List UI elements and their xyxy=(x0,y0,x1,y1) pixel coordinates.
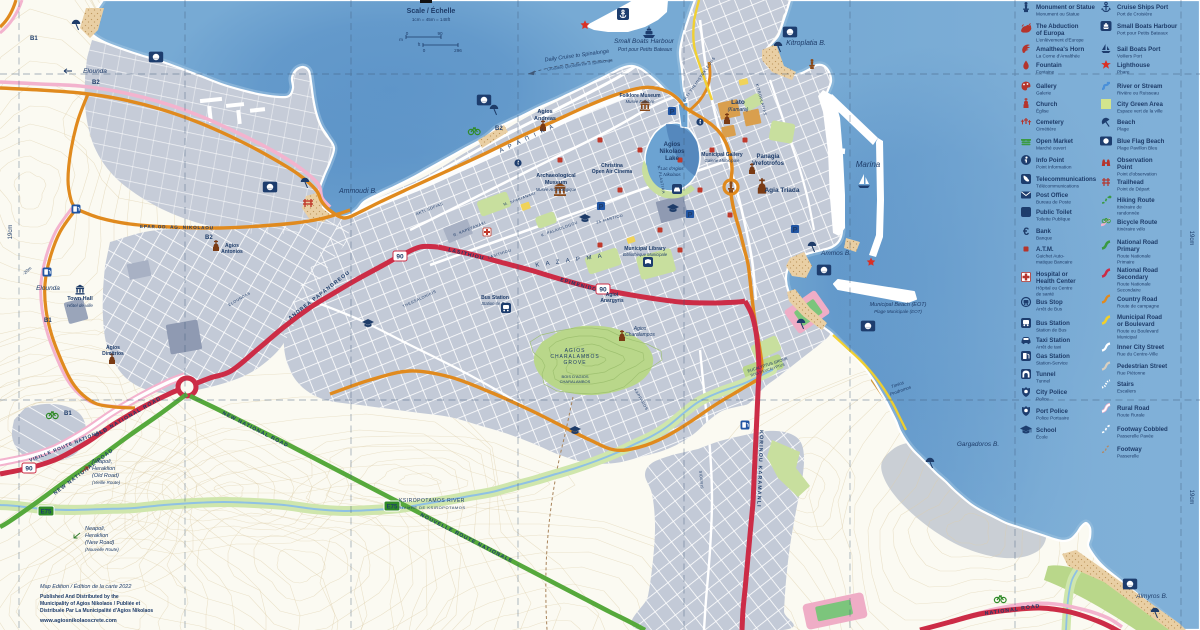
svg-text:Agia Triada: Agia Triada xyxy=(764,187,799,194)
svg-text:Gas Station: Gas Station xyxy=(1036,353,1070,360)
svg-text:P: P xyxy=(670,107,675,116)
svg-text:296: 296 xyxy=(454,48,462,53)
svg-text:Itinéraire vélo: Itinéraire vélo xyxy=(1117,226,1146,231)
svg-text:Passerelle: Passerelle xyxy=(1117,453,1139,458)
svg-text:Neapoli,: Neapoli, xyxy=(85,526,105,532)
svg-text:Plage Pavillon Bleu: Plage Pavillon Bleu xyxy=(1117,145,1158,150)
svg-text:Port de Croisière: Port de Croisière xyxy=(1117,11,1153,16)
svg-text:Lighthouse: Lighthouse xyxy=(1117,62,1150,69)
svg-text:National Road: National Road xyxy=(1117,239,1158,246)
svg-text:19cm: 19cm xyxy=(8,225,14,240)
svg-text:Guichet Auto-: Guichet Auto- xyxy=(1036,253,1065,258)
svg-text:Banque: Banque xyxy=(1036,235,1053,240)
svg-text:Gargadoros B.: Gargadoros B. xyxy=(957,441,999,448)
svg-text:90: 90 xyxy=(437,31,443,36)
svg-text:Hôtel de ville: Hôtel de ville xyxy=(67,303,93,308)
svg-text:CHARALAMBOS: CHARALAMBOS xyxy=(560,379,591,384)
svg-text:P: P xyxy=(599,202,604,211)
svg-text:Route de campagne: Route de campagne xyxy=(1117,303,1160,308)
svg-text:Ammoudi B.: Ammoudi B. xyxy=(338,188,377,195)
svg-text:City Police: City Police xyxy=(1036,389,1068,396)
svg-text:Sail Boats Port: Sail Boats Port xyxy=(1117,46,1160,53)
svg-text:Dimitrios: Dimitrios xyxy=(102,351,124,357)
svg-text:National Road: National Road xyxy=(1117,267,1158,274)
svg-text:The Abduction: The Abduction xyxy=(1036,23,1079,30)
svg-text:RIVIèRE DE KSIROPOTAMOS: RIVIèRE DE KSIROPOTAMOS xyxy=(399,505,466,510)
svg-text:Escaliers: Escaliers xyxy=(1117,388,1137,393)
svg-text:Primaire: Primaire xyxy=(1117,260,1135,265)
svg-text:Inner City Street: Inner City Street xyxy=(1117,344,1164,351)
svg-text:Port Police: Port Police xyxy=(1036,408,1068,415)
svg-text:Musée Archéologique: Musée Archéologique xyxy=(536,187,577,192)
svg-text:m: m xyxy=(399,37,403,42)
svg-text:90: 90 xyxy=(396,254,404,261)
svg-text:Almyros B.: Almyros B. xyxy=(1135,593,1168,600)
svg-text:Taxi Station: Taxi Station xyxy=(1036,337,1070,344)
svg-text:de santé: de santé xyxy=(1036,292,1054,297)
svg-text:Open Air Cinema: Open Air Cinema xyxy=(592,169,633,175)
svg-text:Kitroplatia B.: Kitroplatia B. xyxy=(786,40,826,47)
svg-text:Small Boats Harbour: Small Boats Harbour xyxy=(1117,23,1178,30)
svg-text:Hôpital ou Centre: Hôpital ou Centre xyxy=(1036,286,1073,291)
svg-text:Town Hall: Town Hall xyxy=(67,296,93,302)
svg-text:Itinéraire de: Itinéraire de xyxy=(1117,204,1142,209)
svg-text:Footway Cobbled: Footway Cobbled xyxy=(1117,426,1168,433)
svg-text:1cm = 45m = 148ft: 1cm = 45m = 148ft xyxy=(412,17,451,22)
svg-text:(Nouvelle Route): (Nouvelle Route) xyxy=(85,547,119,552)
svg-text:École: École xyxy=(1036,433,1048,439)
svg-text:Ammos B.: Ammos B. xyxy=(820,250,851,257)
svg-text:Fontaine: Fontaine xyxy=(1036,69,1055,74)
svg-text:Fountain: Fountain xyxy=(1036,62,1062,69)
svg-text:School: School xyxy=(1036,427,1057,434)
svg-text:Bureau de Poste: Bureau de Poste xyxy=(1036,199,1071,204)
svg-text:E75: E75 xyxy=(387,505,398,511)
svg-text:Small Boats Harbour: Small Boats Harbour xyxy=(614,38,675,45)
svg-text:Footway: Footway xyxy=(1117,446,1142,453)
svg-text:Arrêt de taxi: Arrêt de taxi xyxy=(1036,344,1061,349)
svg-text:Espace vert de la ville: Espace vert de la ville xyxy=(1117,108,1163,113)
svg-text:Primary: Primary xyxy=(1117,246,1140,253)
svg-text:Route Nationale: Route Nationale xyxy=(1117,254,1151,259)
svg-text:Panagia: Panagia xyxy=(756,154,780,160)
svg-text:Galerie: Galerie xyxy=(1036,90,1052,95)
svg-text:(Old Road): (Old Road) xyxy=(92,473,119,479)
svg-text:L'enlèvement d'Europe: L'enlèvement d'Europe xyxy=(1036,38,1084,43)
svg-text:Nikolaos: Nikolaos xyxy=(663,172,681,177)
svg-text:Toilette Publique: Toilette Publique xyxy=(1036,216,1071,221)
svg-text:B2: B2 xyxy=(92,80,100,86)
svg-text:Bibliothèque Municipale: Bibliothèque Municipale xyxy=(623,252,668,257)
svg-text:(Vieille Route): (Vieille Route) xyxy=(92,480,121,485)
svg-text:Charalampos: Charalampos xyxy=(625,332,655,338)
svg-text:Info Point: Info Point xyxy=(1036,157,1064,164)
svg-text:GROVE: GROVE xyxy=(563,360,586,366)
svg-text:Marché ouvert: Marché ouvert xyxy=(1036,145,1067,150)
svg-text:Hiking Route: Hiking Route xyxy=(1117,197,1155,204)
svg-text:Beach: Beach xyxy=(1117,119,1136,126)
svg-text:or Boulevard: or Boulevard xyxy=(1117,321,1155,328)
svg-text:Point Information: Point Information xyxy=(1036,164,1072,169)
svg-text:Station-Service: Station-Service xyxy=(1036,360,1068,365)
svg-text:Agios: Agios xyxy=(537,109,552,115)
svg-text:Gallery: Gallery xyxy=(1036,83,1057,90)
svg-text:Published And Distributed by t: Published And Distributed by the xyxy=(40,594,119,600)
svg-text:Bus Station: Bus Station xyxy=(1036,320,1070,327)
svg-text:Point de Départ: Point de Départ xyxy=(1117,186,1150,191)
svg-text:Station de Bus: Station de Bus xyxy=(1036,327,1067,332)
svg-text:(Kamara): (Kamara) xyxy=(728,107,749,113)
svg-text:Vrefotrofos: Vrefotrofos xyxy=(752,161,785,167)
svg-text:Tunnel: Tunnel xyxy=(1036,378,1050,383)
svg-text:(New Road): (New Road) xyxy=(85,540,115,546)
svg-text:Municipal Road: Municipal Road xyxy=(1117,314,1162,321)
svg-text:Cimétière: Cimétière xyxy=(1036,126,1056,131)
svg-text:Station de Bus: Station de Bus xyxy=(481,301,509,306)
svg-text:Observation: Observation xyxy=(1117,157,1153,164)
svg-text:Bus Stop: Bus Stop xyxy=(1036,299,1063,306)
svg-text:Distribuée Par La Municipalité: Distribuée Par La Municipalité d'Agios N… xyxy=(40,608,153,614)
svg-text:KSIROPOTAMOS RIVER: KSIROPOTAMOS RIVER xyxy=(399,498,465,504)
svg-text:B1: B1 xyxy=(44,318,52,324)
svg-text:Monument ou Statue: Monument ou Statue xyxy=(1036,11,1080,16)
svg-text:Télécommunications: Télécommunications xyxy=(1036,183,1080,188)
svg-text:Municipal Beach (EOT): Municipal Beach (EOT) xyxy=(870,302,927,308)
svg-text:Rural Road: Rural Road xyxy=(1117,405,1150,412)
svg-text:Route Rurale: Route Rurale xyxy=(1117,412,1145,417)
svg-text:Rue du Centre-Ville: Rue du Centre-Ville xyxy=(1117,351,1158,356)
svg-text:Amalthea's Horn: Amalthea's Horn xyxy=(1036,46,1084,53)
svg-text:Public Toilet: Public Toilet xyxy=(1036,209,1072,216)
svg-text:Lake: Lake xyxy=(665,156,679,162)
svg-text:E75: E75 xyxy=(41,510,52,516)
svg-text:randonnée: randonnée xyxy=(1117,210,1140,215)
svg-text:Church: Church xyxy=(1036,101,1058,108)
svg-text:Port pour Petits Bateaux: Port pour Petits Bateaux xyxy=(1117,30,1168,35)
svg-text:Neapoli,: Neapoli, xyxy=(92,459,112,465)
svg-text:Telecommunications: Telecommunications xyxy=(1036,176,1097,183)
svg-text:Musée Folklore: Musée Folklore xyxy=(626,99,655,104)
svg-text:Route ou Boulevard: Route ou Boulevard xyxy=(1117,329,1159,334)
svg-text:Blue Flag Beach: Blue Flag Beach xyxy=(1117,138,1165,145)
svg-text:Heraklion: Heraklion xyxy=(92,466,115,472)
svg-text:Cemetery: Cemetery xyxy=(1036,119,1064,126)
svg-text:Elounda: Elounda xyxy=(36,285,60,292)
svg-text:Bank: Bank xyxy=(1036,228,1052,235)
svg-text:Anargyris: Anargyris xyxy=(600,298,624,304)
svg-text:19cm: 19cm xyxy=(1188,231,1194,246)
svg-text:Stairs: Stairs xyxy=(1117,381,1135,388)
svg-text:Antonios: Antonios xyxy=(221,249,243,255)
svg-text:Monument or Statue: Monument or Statue xyxy=(1036,4,1096,11)
svg-text:B1: B1 xyxy=(64,411,72,417)
svg-text:Marina: Marina xyxy=(856,160,881,169)
svg-text:Lac d'Agios: Lac d'Agios xyxy=(660,166,684,171)
svg-text:Museum: Museum xyxy=(545,180,567,186)
svg-text:Scale / Échelle: Scale / Échelle xyxy=(407,6,456,15)
svg-text:Arrêt de Bus: Arrêt de Bus xyxy=(1036,306,1063,311)
svg-text:WC: WC xyxy=(1021,211,1032,217)
svg-text:Phare: Phare xyxy=(1117,69,1130,74)
svg-text:City Green Area: City Green Area xyxy=(1117,101,1163,108)
svg-text:B2: B2 xyxy=(495,126,503,132)
svg-text:Rivière ou Ruisseau: Rivière ou Ruisseau xyxy=(1117,90,1159,95)
svg-text:Point: Point xyxy=(1117,164,1132,171)
svg-text:Map Edition / Édition de la ca: Map Edition / Édition de la carte 2022 xyxy=(40,583,131,590)
svg-text:Pedestrian Street: Pedestrian Street xyxy=(1117,363,1167,370)
svg-text:Nikolaos: Nikolaos xyxy=(659,149,685,155)
svg-text:Cruise Ships Port: Cruise Ships Port xyxy=(1117,4,1168,11)
svg-text:Agios: Agios xyxy=(664,142,681,148)
svg-text:A.T.M.: A.T.M. xyxy=(1036,246,1054,253)
svg-text:19cm: 19cm xyxy=(1188,490,1194,505)
svg-text:www.agiosnikolaoscrete.com: www.agiosnikolaoscrete.com xyxy=(39,618,117,624)
svg-text:Police: Police xyxy=(1036,396,1049,401)
svg-text:0: 0 xyxy=(423,48,426,53)
svg-text:Église: Église xyxy=(1036,107,1049,113)
svg-text:Open Market: Open Market xyxy=(1036,138,1073,145)
svg-text:Police Portuaire: Police Portuaire xyxy=(1036,415,1069,420)
svg-text:Tunnel: Tunnel xyxy=(1036,371,1056,378)
svg-text:River or Stream: River or Stream xyxy=(1117,83,1163,90)
svg-text:Lato: Lato xyxy=(731,99,745,106)
svg-text:Country Road: Country Road xyxy=(1117,296,1158,303)
svg-text:Rue Piétonne: Rue Piétonne xyxy=(1117,370,1146,375)
svg-text:B1: B1 xyxy=(30,36,38,42)
svg-text:Voiliers Port: Voiliers Port xyxy=(1117,53,1143,58)
svg-text:of Europa: of Europa xyxy=(1036,30,1065,37)
svg-text:Secondaire: Secondaire xyxy=(1117,288,1141,293)
svg-text:Plage Municipale (EOT): Plage Municipale (EOT) xyxy=(874,309,922,314)
svg-text:matique Bancaire: matique Bancaire xyxy=(1036,259,1073,264)
svg-text:Galerie Municipale: Galerie Municipale xyxy=(705,158,740,163)
svg-text:€: € xyxy=(1023,226,1029,238)
svg-text:Bicycle Route: Bicycle Route xyxy=(1117,219,1158,226)
svg-text:Secondary: Secondary xyxy=(1117,274,1149,281)
svg-text:Trailhead: Trailhead xyxy=(1117,179,1144,186)
svg-text:Route Nationale: Route Nationale xyxy=(1117,282,1151,287)
svg-text:Heraklion: Heraklion xyxy=(85,533,108,539)
svg-text:La Corne d'Amalthée: La Corne d'Amalthée xyxy=(1036,53,1080,58)
svg-text:Port pour Petits Bateaux: Port pour Petits Bateaux xyxy=(618,47,673,53)
svg-text:Plage: Plage xyxy=(1117,126,1129,131)
svg-text:Passerelle Pavée: Passerelle Pavée xyxy=(1117,433,1154,438)
svg-text:Municipal: Municipal xyxy=(1117,335,1137,340)
svg-text:P: P xyxy=(688,210,693,219)
svg-text:Andreas: Andreas xyxy=(534,116,556,122)
svg-text:Point d'observation: Point d'observation xyxy=(1117,172,1157,177)
svg-text:P: P xyxy=(793,225,798,234)
svg-text:90: 90 xyxy=(25,466,33,473)
svg-text:Municipality of Agios Nikolaos: Municipality of Agios Nikolaos / Publiée… xyxy=(40,601,140,607)
svg-text:B2: B2 xyxy=(205,235,213,241)
svg-text:Archaeological: Archaeological xyxy=(536,173,576,179)
svg-text:Health Center: Health Center xyxy=(1036,278,1076,285)
svg-text:Post Office: Post Office xyxy=(1036,192,1069,199)
svg-text:Hospital or: Hospital or xyxy=(1036,271,1068,278)
